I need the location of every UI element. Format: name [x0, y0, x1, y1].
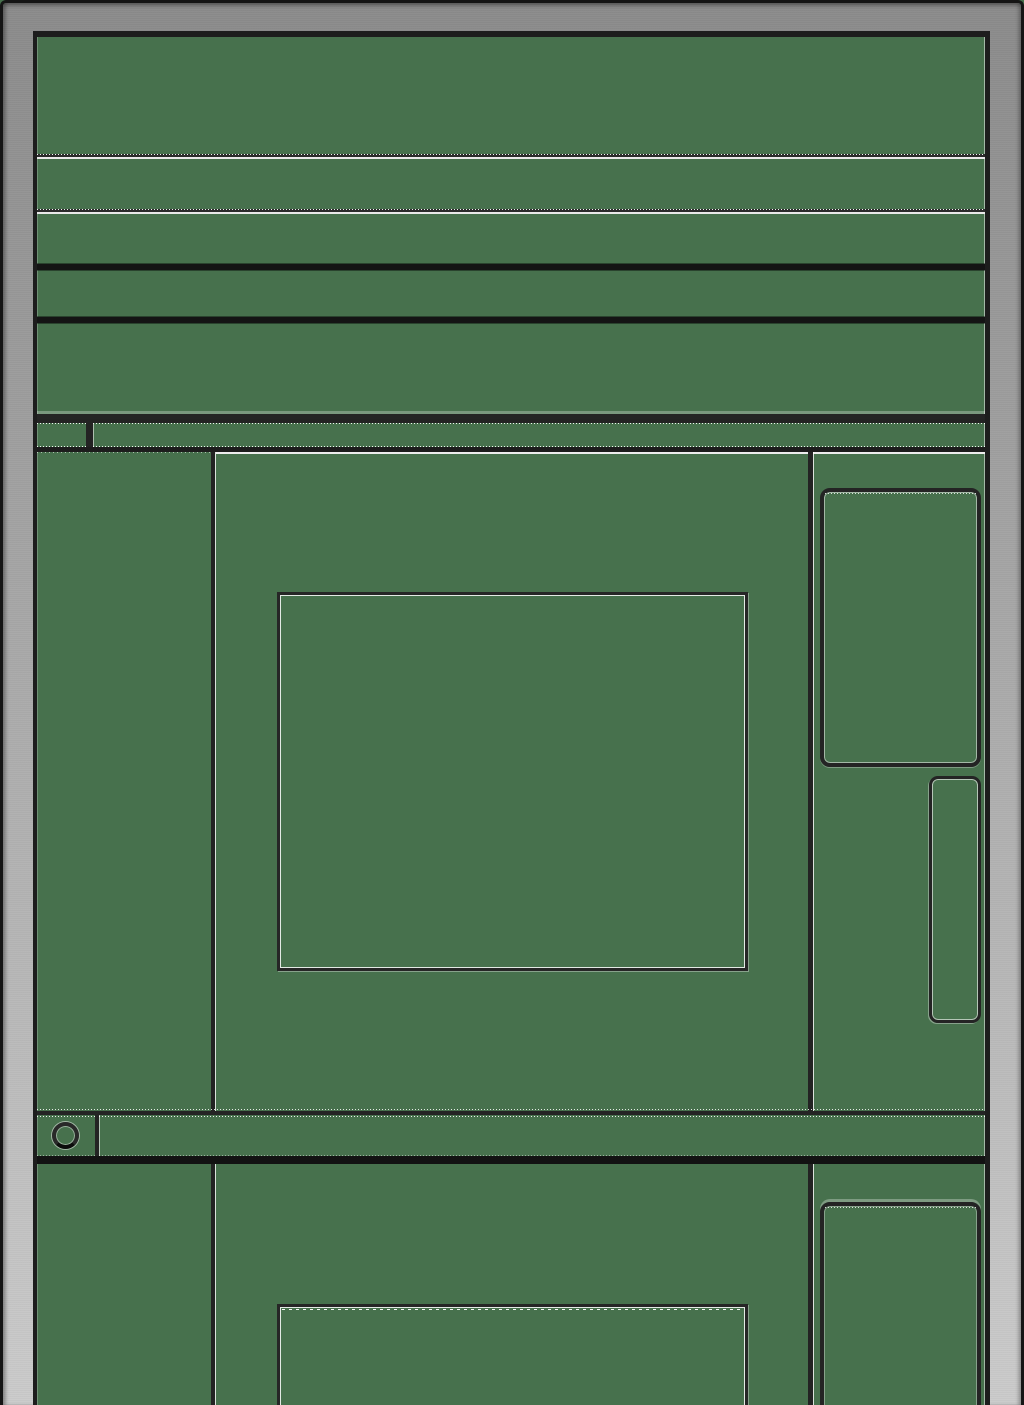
groove-divider-1: [37, 154, 985, 161]
statusbar-top-dotted-line: [37, 1109, 985, 1110]
left-splitter-2[interactable]: [211, 1164, 215, 1405]
status-message-area: [99, 1115, 985, 1156]
toolbar-area-1[interactable]: [37, 216, 985, 264]
content-card-2: [277, 1304, 748, 1405]
status-icon-cell: [37, 1115, 99, 1156]
content-area: [37, 452, 985, 1111]
right-splitter[interactable]: [808, 452, 813, 1111]
status-bar: [37, 1111, 985, 1164]
menubar-area[interactable]: [37, 161, 985, 209]
groove-divider-2: [37, 209, 985, 216]
ring-icon: [52, 1122, 79, 1149]
sidebar-card-2: [820, 1202, 981, 1405]
address-row-button[interactable]: [37, 423, 93, 447]
address-row: [37, 419, 985, 452]
sidebar-card: [820, 488, 981, 767]
toolbar-area-3[interactable]: [37, 323, 985, 414]
content-area-2: [37, 1164, 985, 1405]
app-window: [33, 31, 990, 1405]
address-row-field[interactable]: [93, 423, 985, 447]
left-splitter[interactable]: [211, 452, 215, 1111]
left-sidebar[interactable]: [37, 452, 211, 1111]
toolbar-area-2[interactable]: [37, 270, 985, 317]
right-splitter-2[interactable]: [808, 1164, 813, 1405]
left-sidebar-2[interactable]: [37, 1164, 211, 1405]
desktop-background: { "window": { "state": "skeleton-no-text…: [0, 0, 1024, 1405]
window-frame: [0, 0, 1024, 1405]
titlebar-area[interactable]: [37, 37, 985, 154]
scrollbar-thumb[interactable]: [929, 776, 981, 1023]
content-card: [277, 592, 748, 971]
